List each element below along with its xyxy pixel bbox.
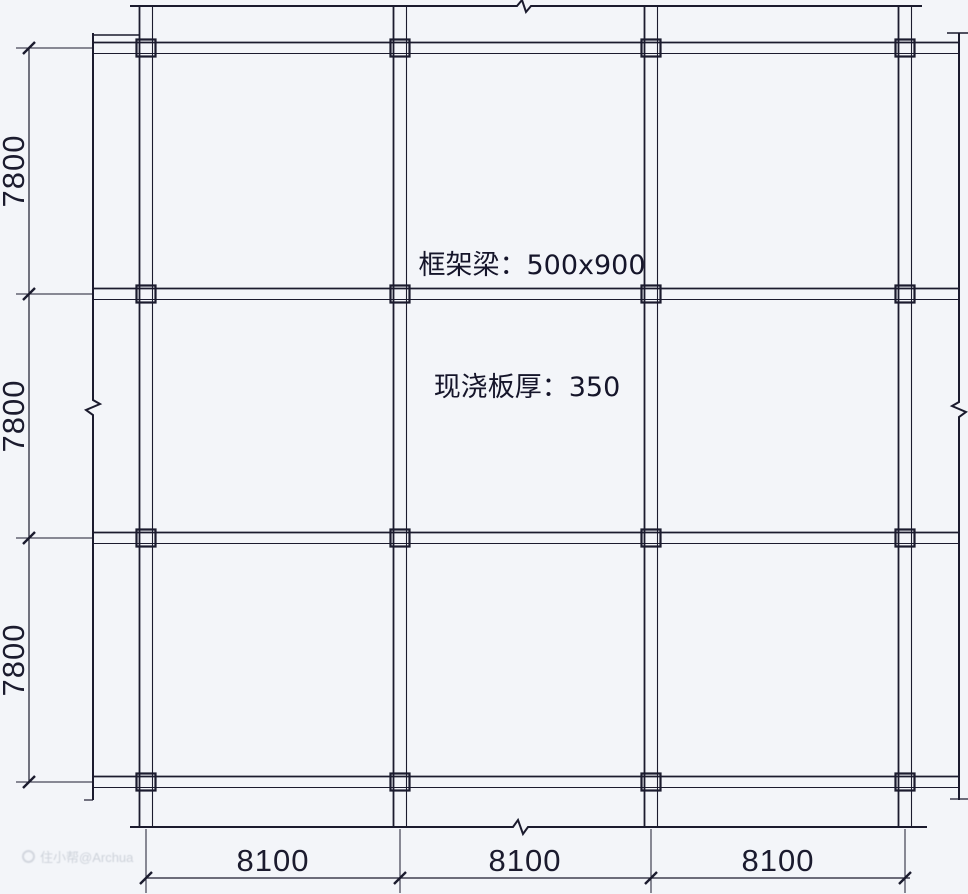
dimension-label-bottom-1: 8100: [237, 843, 310, 878]
dimension-label-left-1: 7800: [0, 135, 31, 208]
dimension-label-left-3: 7800: [0, 624, 31, 697]
beam-grid: [93, 6, 959, 827]
dimension-label-left-2: 7800: [0, 380, 31, 453]
annotations: 框架梁：500x900 现浇板厚：350: [418, 250, 645, 403]
cut-line-right: [952, 33, 966, 800]
beam-size-label: 框架梁：500x900: [418, 250, 645, 281]
dimension-label-bottom-2: 8100: [489, 843, 562, 878]
slab-thickness-label: 现浇板厚：350: [434, 372, 621, 403]
column-squares: [137, 40, 915, 791]
watermark-text: 住小帮@Archua: [40, 847, 133, 866]
watermark: 住小帮@Archua: [22, 847, 133, 866]
plan-svg: 7800 7800 7800 8100 8100 8100 框架梁：500x90…: [0, 0, 968, 894]
watermark-logo-icon: [22, 850, 35, 863]
cut-line-bottom: [130, 820, 927, 834]
cut-line-left: [86, 33, 100, 800]
cut-boundary: [84, 0, 968, 834]
dimension-label-bottom-3: 8100: [742, 843, 815, 878]
dimension-labels: 7800 7800 7800 8100 8100 8100: [0, 135, 814, 878]
structural-plan-drawing: 7800 7800 7800 8100 8100 8100 框架梁：500x90…: [0, 0, 968, 894]
cut-line-top: [130, 0, 922, 12]
